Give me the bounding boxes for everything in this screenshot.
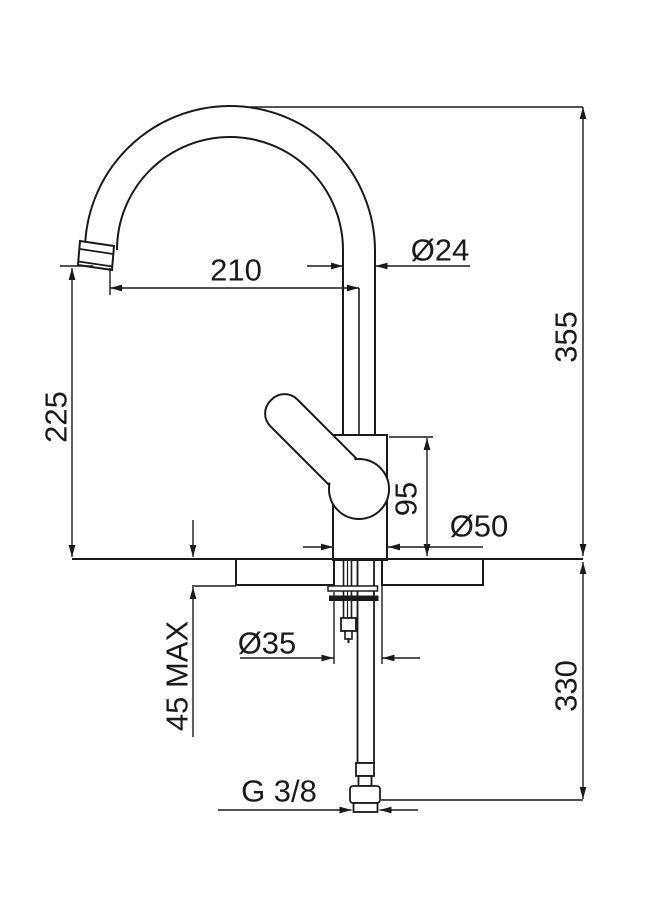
connector-nut	[350, 786, 380, 803]
dim-label-body-diameter: Ø50	[450, 511, 509, 542]
mounting-nut	[329, 596, 379, 602]
connector-neck	[359, 776, 372, 786]
countertop	[72, 559, 583, 585]
dim-label-hose-length: 330	[551, 660, 582, 712]
stud-tip	[345, 631, 352, 639]
under-counter-hardware	[328, 560, 379, 763]
dim-label-spout-reach: 210	[210, 255, 262, 286]
hose-connector	[350, 763, 380, 812]
dim-label-hole-diameter: Ø35	[238, 628, 297, 659]
counter-slab-left	[236, 559, 334, 585]
dim-label-deck-thickness-max: 45 MAX	[162, 621, 193, 731]
connector-thread-end	[354, 803, 378, 812]
faucet-dimension-diagram	[0, 0, 645, 913]
dim-label-body-height: 95	[391, 482, 422, 516]
dim-label-total-height: 355	[551, 311, 582, 363]
connector-collar	[356, 763, 374, 776]
dim-label-spout-diameter: Ø24	[411, 235, 470, 266]
technical-drawing: 355 330 225 210 Ø24 Ø50 95 Ø35 45 MAX G …	[0, 0, 645, 913]
mounting-washer	[328, 586, 378, 591]
counter-slab-right	[382, 559, 483, 585]
dim-label-thread-size: G 3/8	[241, 776, 317, 807]
stud-nut	[341, 618, 356, 631]
dim-label-outlet-height: 225	[41, 391, 72, 443]
